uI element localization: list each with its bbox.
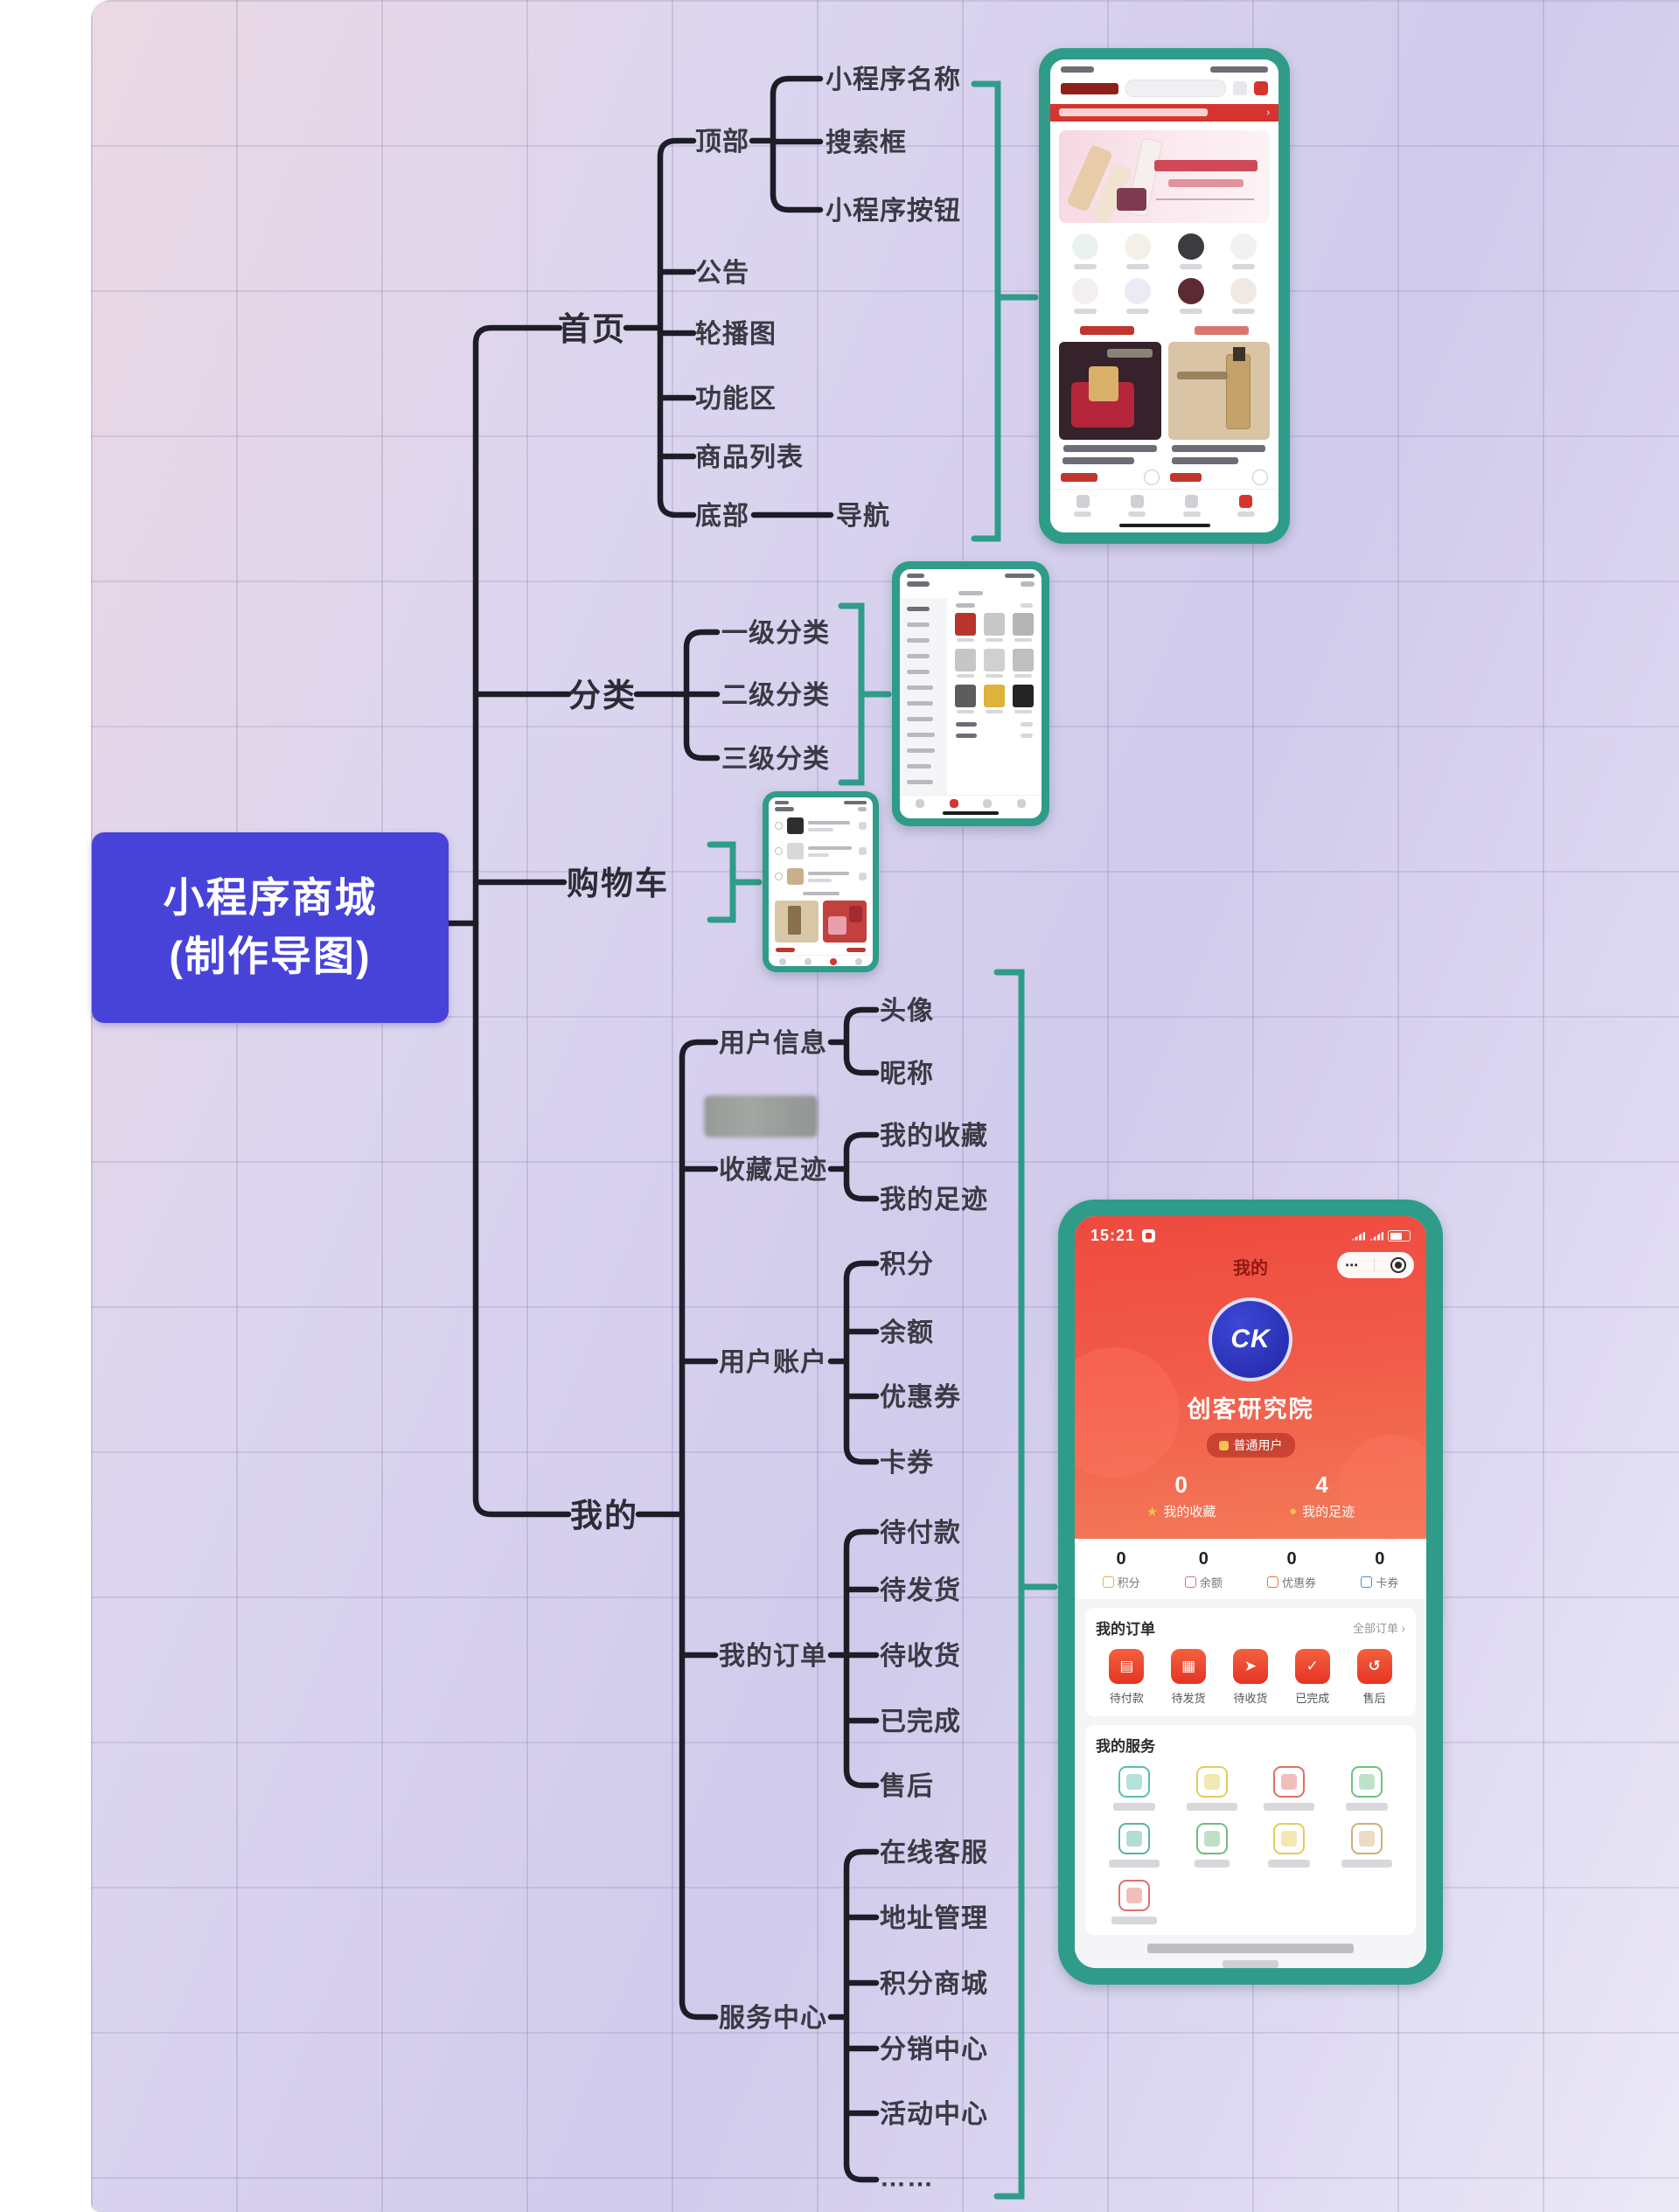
profile-status-bar: 15:21 bbox=[1075, 1216, 1426, 1245]
category-header bbox=[900, 580, 1042, 588]
node-notice[interactable]: 公告 bbox=[695, 251, 749, 289]
recommend-divider bbox=[769, 889, 873, 898]
bag-icon bbox=[1351, 1823, 1383, 1854]
more-dots-icon[interactable]: ⋯ bbox=[1345, 1257, 1358, 1273]
service-item[interactable] bbox=[1096, 1880, 1174, 1924]
home-status-bar bbox=[1050, 59, 1278, 76]
cart-header bbox=[769, 805, 873, 813]
node-cards[interactable]: 卡券 bbox=[880, 1441, 934, 1479]
root-topic-line2: (制作导图) bbox=[169, 928, 371, 986]
node-home[interactable]: 首页 bbox=[558, 303, 626, 350]
cart-tabbar bbox=[769, 955, 873, 966]
node-feature-area[interactable]: 功能区 bbox=[695, 377, 777, 415]
product-card bbox=[1059, 342, 1161, 489]
node-bottom[interactable]: 底部 bbox=[695, 494, 749, 532]
node-miniapp-button[interactable]: 小程序按钮 bbox=[826, 189, 961, 227]
node-ellipsis[interactable]: …… bbox=[880, 2164, 934, 2194]
home-tabbar bbox=[1050, 489, 1278, 520]
ticket-icon bbox=[1273, 1823, 1305, 1854]
signal-icon bbox=[1351, 1232, 1365, 1241]
menu-icon bbox=[1233, 81, 1247, 95]
group-icon bbox=[1118, 1880, 1150, 1911]
miniapp-capsule[interactable]: ⋯ bbox=[1337, 1252, 1414, 1278]
user-level-badge: 普通用户 bbox=[1207, 1433, 1295, 1457]
search-bar bbox=[1125, 80, 1226, 97]
cart-item bbox=[769, 838, 873, 864]
node-activity-center[interactable]: 活动中心 bbox=[880, 2092, 988, 2131]
node-order-unshipped[interactable]: 待发货 bbox=[880, 1569, 961, 1607]
profile-footer bbox=[1075, 1935, 1426, 1968]
coin-icon bbox=[1103, 1576, 1114, 1588]
order-aftersale[interactable]: ↺售后 bbox=[1357, 1649, 1392, 1706]
orders-title: 我的订单 bbox=[1096, 1617, 1155, 1638]
category-grid bbox=[947, 598, 1042, 795]
node-service-center[interactable]: 服务中心 bbox=[719, 1996, 827, 2035]
card-stat[interactable]: 0 卡券 bbox=[1361, 1549, 1398, 1590]
service-item[interactable] bbox=[1328, 1823, 1406, 1868]
node-my-favorites[interactable]: 我的收藏 bbox=[880, 1114, 988, 1152]
profile-screenshot[interactable]: 15:21 我的 ⋯ CK 创客研究院 普通用户 0 bbox=[1058, 1200, 1443, 1985]
node-home-top[interactable]: 顶部 bbox=[695, 120, 749, 158]
node-miniapp-name[interactable]: 小程序名称 bbox=[826, 58, 961, 96]
footprint-icon: ● bbox=[1289, 1504, 1297, 1519]
root-topic-line1: 小程序商城 bbox=[164, 869, 378, 928]
screen-record-icon bbox=[1142, 1229, 1155, 1242]
node-online-service[interactable]: 在线客服 bbox=[880, 1831, 988, 1869]
node-avatar[interactable]: 头像 bbox=[880, 989, 934, 1027]
node-address-mgmt[interactable]: 地址管理 bbox=[880, 1896, 988, 1935]
category-sidebar bbox=[900, 598, 947, 795]
address-icon bbox=[1196, 1766, 1228, 1798]
node-product-list[interactable]: 商品列表 bbox=[695, 435, 804, 474]
redacted-watermark bbox=[705, 1096, 817, 1137]
product-card bbox=[1168, 342, 1271, 489]
category-screenshot[interactable] bbox=[892, 561, 1049, 826]
order-unpaid[interactable]: ▤待付款 bbox=[1109, 1649, 1144, 1706]
points-stat[interactable]: 0 积分 bbox=[1103, 1549, 1140, 1590]
announcement-bar: › bbox=[1050, 104, 1278, 122]
service-item[interactable] bbox=[1174, 1766, 1251, 1811]
account-stats-row: 0 积分 0 余额 0 优惠券 0 卡券 bbox=[1075, 1539, 1426, 1599]
recommend-prices bbox=[769, 945, 873, 955]
node-fav-history[interactable]: 收藏足迹 bbox=[719, 1148, 827, 1186]
level-icon bbox=[1219, 1441, 1229, 1450]
node-distribution[interactable]: 分销中心 bbox=[880, 2028, 988, 2066]
root-topic[interactable]: 小程序商城 (制作导图) bbox=[92, 832, 449, 1023]
wallet-icon: ▤ bbox=[1109, 1649, 1144, 1684]
network-icon bbox=[1273, 1766, 1305, 1798]
node-nickname[interactable]: 昵称 bbox=[880, 1052, 934, 1090]
profile-page-title: 我的 bbox=[1233, 1254, 1268, 1279]
orders-card: 我的订单 全部订单 › ▤待付款 ▦待发货 ➤待收货 ✓已完成 ↺售后 bbox=[1085, 1608, 1416, 1716]
node-mine[interactable]: 我的 bbox=[570, 1489, 638, 1536]
services-title: 我的服务 bbox=[1096, 1734, 1155, 1756]
store-title bbox=[1061, 83, 1118, 94]
category-tab bbox=[900, 588, 1042, 598]
cart-icon bbox=[1254, 81, 1268, 95]
service-item[interactable] bbox=[1251, 1766, 1328, 1811]
profile-header: 15:21 我的 ⋯ CK 创客研究院 普通用户 0 bbox=[1075, 1216, 1426, 1539]
balance-stat[interactable]: 0 余额 bbox=[1185, 1549, 1223, 1590]
product-grid bbox=[1050, 342, 1278, 489]
star-icon: ★ bbox=[1146, 1504, 1158, 1520]
node-category-l1[interactable]: 一级分类 bbox=[721, 611, 830, 650]
service-item[interactable] bbox=[1096, 1823, 1174, 1868]
all-orders-link[interactable]: 全部订单 › bbox=[1353, 1619, 1405, 1636]
hero-banner bbox=[1059, 130, 1270, 223]
node-order-aftersale[interactable]: 售后 bbox=[880, 1764, 934, 1803]
cart-item bbox=[769, 813, 873, 838]
growth-icon bbox=[1351, 1766, 1383, 1798]
status-time: 15:21 bbox=[1090, 1227, 1135, 1244]
feature-icon-grid bbox=[1050, 230, 1278, 321]
node-user-account[interactable]: 用户账户 bbox=[719, 1340, 827, 1379]
recommend-grid bbox=[769, 898, 873, 945]
close-target-icon[interactable] bbox=[1390, 1257, 1406, 1273]
refund-icon: ↺ bbox=[1357, 1649, 1392, 1684]
home-indicator bbox=[1119, 524, 1210, 527]
section-headers bbox=[1050, 321, 1278, 342]
category-tabbar bbox=[900, 795, 1042, 810]
checkbox-icon bbox=[1196, 1823, 1228, 1854]
money-icon bbox=[1118, 1823, 1150, 1854]
order-done[interactable]: ✓已完成 bbox=[1295, 1649, 1330, 1706]
service-item[interactable] bbox=[1096, 1766, 1174, 1811]
node-order-unpaid[interactable]: 待付款 bbox=[880, 1511, 961, 1549]
service-item[interactable] bbox=[1328, 1766, 1406, 1811]
coupon-icon bbox=[1267, 1576, 1278, 1588]
node-my-orders[interactable]: 我的订单 bbox=[719, 1634, 827, 1673]
node-order-done[interactable]: 已完成 bbox=[880, 1700, 961, 1738]
avatar-logo: CK bbox=[1230, 1325, 1270, 1354]
node-cart[interactable]: 购物车 bbox=[567, 857, 669, 904]
cart-screenshot[interactable] bbox=[763, 791, 879, 972]
truck-icon: ➤ bbox=[1233, 1649, 1268, 1684]
chat-icon bbox=[1118, 1766, 1150, 1798]
node-category[interactable]: 分类 bbox=[568, 669, 637, 716]
node-points-mall[interactable]: 积分商城 bbox=[880, 1962, 988, 2000]
home-indicator bbox=[943, 811, 999, 815]
node-balance[interactable]: 余额 bbox=[880, 1311, 934, 1349]
coupon-stat[interactable]: 0 优惠券 bbox=[1267, 1549, 1316, 1590]
node-category-l2[interactable]: 二级分类 bbox=[721, 673, 830, 712]
wallet-icon bbox=[1185, 1576, 1196, 1588]
avatar[interactable]: CK bbox=[1209, 1297, 1292, 1381]
node-search-box[interactable]: 搜索框 bbox=[826, 121, 907, 159]
home-header bbox=[1050, 76, 1278, 104]
battery-icon bbox=[1388, 1230, 1411, 1242]
node-my-footprints[interactable]: 我的足迹 bbox=[880, 1178, 988, 1216]
check-icon: ✓ bbox=[1295, 1649, 1330, 1684]
node-carousel[interactable]: 轮播图 bbox=[695, 312, 777, 351]
node-navigation[interactable]: 导航 bbox=[836, 494, 890, 532]
services-card: 我的服务 bbox=[1085, 1725, 1416, 1935]
home-screenshot[interactable]: › bbox=[1039, 48, 1290, 544]
node-order-shipped[interactable]: 待收货 bbox=[880, 1634, 961, 1673]
service-item[interactable] bbox=[1251, 1823, 1328, 1868]
service-item[interactable] bbox=[1174, 1823, 1251, 1868]
node-user-info[interactable]: 用户信息 bbox=[719, 1021, 827, 1060]
favorites-stat[interactable]: 0 ★我的收藏 bbox=[1146, 1471, 1216, 1520]
box-icon: ▦ bbox=[1171, 1649, 1206, 1684]
card-icon bbox=[1361, 1576, 1372, 1588]
cart-status-bar bbox=[769, 797, 873, 805]
node-coupons[interactable]: 优惠券 bbox=[880, 1375, 961, 1414]
category-status-bar bbox=[900, 569, 1042, 580]
cart-item bbox=[769, 864, 873, 889]
signal-icon bbox=[1369, 1232, 1383, 1241]
node-points[interactable]: 积分 bbox=[880, 1242, 934, 1281]
order-unshipped[interactable]: ▦待发货 bbox=[1171, 1649, 1206, 1706]
order-shipped[interactable]: ➤待收货 bbox=[1233, 1649, 1268, 1706]
node-category-l3[interactable]: 三级分类 bbox=[721, 737, 830, 776]
